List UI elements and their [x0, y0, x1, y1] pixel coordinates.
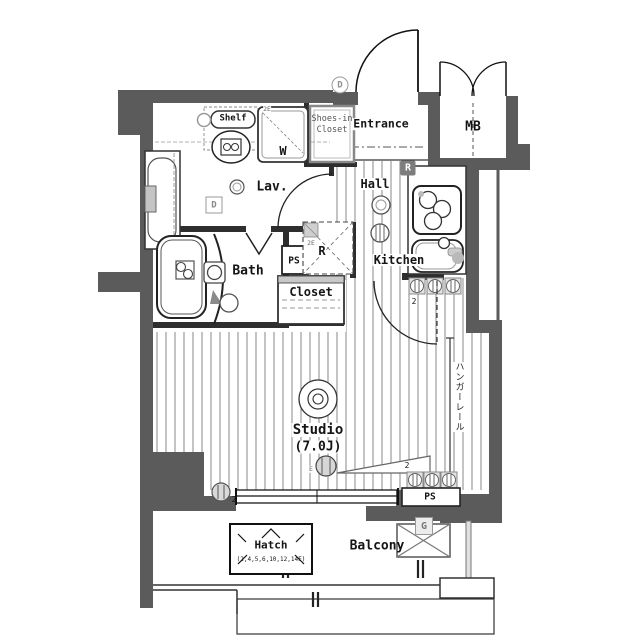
stove-icon: [413, 186, 461, 234]
outlet-right-count: 2: [405, 462, 410, 470]
hatch-floors-label: (2,4,5,6,10,12,14F): [237, 557, 306, 563]
balcony-label: Balcony: [349, 540, 406, 553]
entrance-d-badge: D: [332, 77, 349, 94]
lav-d-badge: D: [206, 197, 223, 214]
hatch-label: Hatch: [254, 540, 287, 551]
shelf-label: Shelf: [219, 115, 246, 124]
outlet-kitchen-count: 2: [412, 298, 417, 306]
outlet-row-kitchen: [409, 278, 461, 294]
floor-plan: Shelf W Shoes-in Closet Entrance MB Lav.…: [0, 0, 640, 640]
mark-e: E: [309, 466, 313, 473]
balcony-divider: [466, 521, 471, 578]
shoes-closet-label-line2: Closet: [317, 126, 348, 135]
balcony-window: [236, 488, 398, 505]
mb-label: MB: [464, 121, 482, 134]
exhaust-fan-icon: [371, 224, 389, 242]
gas-meter-badge: G: [415, 517, 433, 535]
mark-2e-a: 2E: [263, 106, 271, 113]
kitchen-label: Kitchen: [373, 254, 426, 266]
lav-downlight: [230, 180, 244, 194]
shoes-closet-label-line1: Shoes-in: [312, 115, 353, 124]
studio-size-label: (7.0J): [294, 441, 343, 454]
bath-label: Bath: [231, 265, 264, 278]
outlet-row-right: [407, 472, 457, 488]
entrance-label: Entrance: [352, 118, 409, 130]
closet-box: [278, 276, 344, 324]
bath-stool: [220, 294, 238, 312]
lav-label: Lav.: [255, 181, 288, 194]
ps-lower-label: PS: [424, 492, 435, 502]
ceiling-light-icon: [299, 380, 337, 418]
studio-label: Studio: [292, 423, 345, 437]
washer-label: W: [278, 145, 287, 157]
mark-2e-b: 2E: [307, 240, 315, 247]
fridge-space: [303, 222, 353, 274]
vanity-basin: [145, 151, 180, 249]
outlet-left-count: 2: [232, 496, 237, 504]
ps-upper-label: PS: [288, 256, 299, 266]
closet-label: Closet: [288, 286, 333, 298]
bathtub: [157, 236, 206, 318]
light-icon: [198, 114, 211, 127]
hall-downlight: [372, 196, 390, 214]
fridge-label: R: [317, 245, 326, 257]
floor-plan-drawing: [0, 0, 640, 640]
refrigerator-badge: R: [401, 161, 416, 176]
hall-label: Hall: [360, 178, 391, 190]
outlet-left: [212, 483, 230, 501]
hanger-rail-label: ハンガーレール: [453, 362, 466, 432]
